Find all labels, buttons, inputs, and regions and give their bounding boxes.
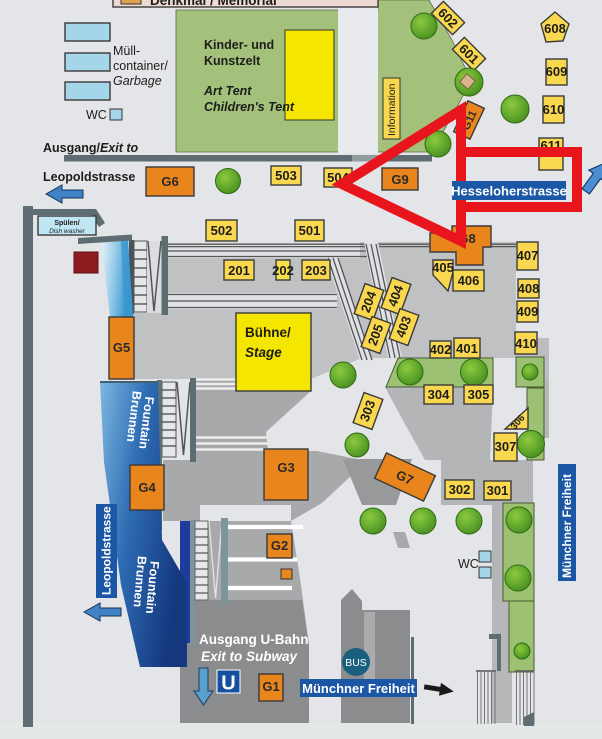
- svg-text:Information: Information: [386, 83, 398, 136]
- svg-text:Stage: Stage: [245, 345, 282, 360]
- svg-text:502: 502: [211, 223, 233, 238]
- svg-text:408: 408: [518, 281, 540, 296]
- svg-text:610: 610: [543, 102, 565, 117]
- svg-text:Garbage: Garbage: [113, 74, 162, 88]
- svg-text:BUS: BUS: [345, 657, 367, 669]
- svg-text:Münchner Freiheit: Münchner Freiheit: [302, 681, 415, 696]
- svg-text:G9: G9: [391, 172, 408, 187]
- svg-text:201: 201: [228, 263, 250, 278]
- svg-text:Kinder- und: Kinder- und: [204, 38, 274, 52]
- svg-text:407: 407: [517, 248, 539, 263]
- svg-text:Art Tent: Art Tent: [203, 84, 252, 98]
- svg-text:Ausgang U-Bahn: Ausgang U-Bahn: [199, 632, 309, 647]
- svg-text:405: 405: [432, 260, 454, 275]
- svg-text:608: 608: [544, 21, 566, 36]
- svg-text:Hesseloherstrasse: Hesseloherstrasse: [451, 184, 567, 199]
- svg-text:WC: WC: [458, 557, 479, 571]
- svg-text:501: 501: [299, 223, 321, 238]
- svg-text:406: 406: [458, 273, 480, 288]
- svg-text:Münchner Freiheit: Münchner Freiheit: [560, 474, 574, 578]
- svg-text:U: U: [221, 673, 235, 695]
- svg-text:Children's Tent: Children's Tent: [204, 100, 295, 114]
- svg-text:203: 203: [305, 263, 327, 278]
- svg-text:301: 301: [487, 483, 509, 498]
- svg-text:Leopoldstrasse: Leopoldstrasse: [100, 506, 114, 595]
- svg-text:Kunstzelt: Kunstzelt: [204, 54, 261, 68]
- svg-text:G6: G6: [161, 174, 178, 189]
- svg-text:304: 304: [428, 387, 450, 402]
- svg-text:409: 409: [517, 304, 539, 319]
- svg-text:202: 202: [272, 263, 294, 278]
- svg-text:Exit to Subway: Exit to Subway: [201, 649, 299, 664]
- svg-text:307: 307: [495, 439, 517, 454]
- svg-text:Dish washer: Dish washer: [49, 228, 86, 235]
- svg-text:container/: container/: [113, 59, 168, 73]
- svg-text:WC: WC: [86, 108, 107, 122]
- svg-text:Müll-: Müll-: [113, 44, 140, 58]
- svg-text:609: 609: [546, 64, 568, 79]
- svg-text:Spülen/: Spülen/: [54, 220, 79, 227]
- svg-text:503: 503: [275, 168, 297, 183]
- svg-text:302: 302: [449, 482, 471, 497]
- svg-text:410: 410: [515, 336, 537, 351]
- svg-text:305: 305: [468, 387, 490, 402]
- svg-text:402: 402: [430, 342, 452, 357]
- svg-text:G3: G3: [277, 460, 294, 475]
- svg-text:G4: G4: [138, 480, 156, 495]
- svg-text:G5: G5: [113, 340, 130, 355]
- svg-text:Leopoldstrasse: Leopoldstrasse: [43, 170, 135, 184]
- svg-text:Ausgang/Exit to: Ausgang/Exit to: [43, 141, 139, 155]
- svg-text:401: 401: [456, 341, 478, 356]
- svg-text:Denkmal / Memorial: Denkmal / Memorial: [150, 0, 277, 8]
- svg-text:Bühne/: Bühne/: [245, 325, 291, 340]
- svg-text:G2: G2: [271, 538, 288, 553]
- svg-text:G1: G1: [262, 679, 279, 694]
